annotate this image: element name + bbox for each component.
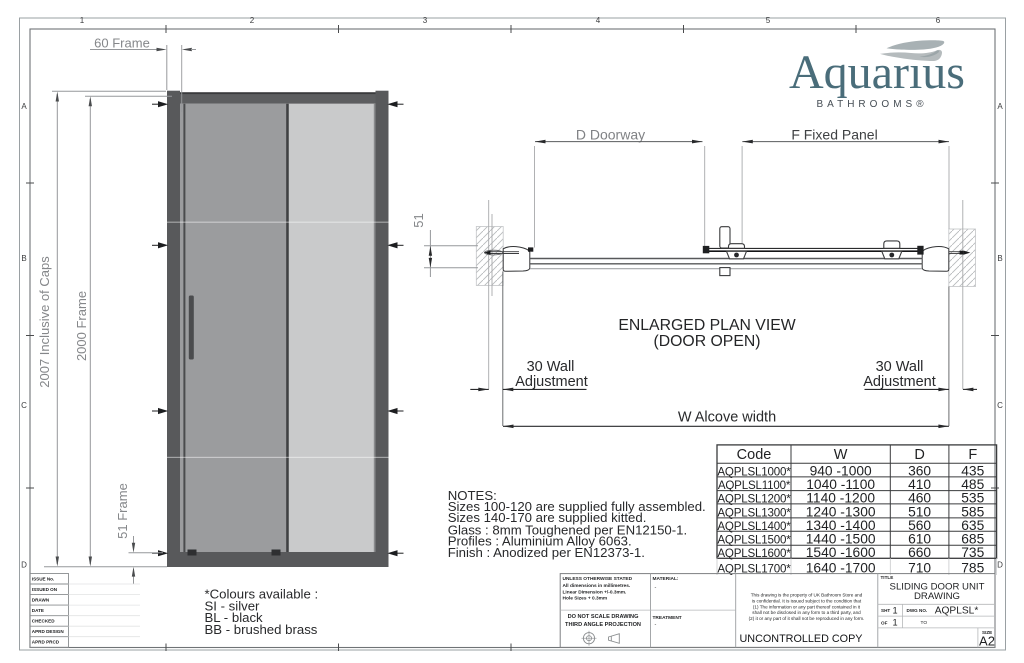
svg-text:6: 6: [936, 16, 941, 25]
svg-text:2000 Frame: 2000 Frame: [74, 291, 89, 361]
svg-text:Finish : Anodized per EN12373-: Finish : Anodized per EN12373-1.: [448, 545, 645, 560]
svg-text:Aquarıus: Aquarıus: [789, 46, 965, 99]
svg-text:All dimensions in millimetres.: All dimensions in millimetres.: [563, 583, 631, 589]
svg-text:-: -: [655, 622, 657, 628]
svg-text:TO: TO: [921, 620, 928, 626]
svg-text:ISSUED ON: ISSUED ON: [32, 587, 58, 592]
svg-text:C: C: [997, 401, 1003, 410]
svg-text:D: D: [914, 447, 924, 463]
svg-text:AQPLSL*: AQPLSL*: [935, 606, 979, 617]
svg-text:1: 1: [892, 617, 897, 627]
svg-text:Code: Code: [737, 447, 772, 463]
svg-text:Adjustment: Adjustment: [515, 374, 588, 390]
svg-text:AQPLSL1500*: AQPLSL1500*: [717, 534, 791, 547]
svg-text:Adjustment: Adjustment: [863, 374, 936, 390]
svg-text:B: B: [997, 254, 1002, 263]
svg-text:D Doorway: D Doorway: [576, 127, 645, 143]
svg-text:(1) The information or any par: (1) The information or any part thereof …: [753, 604, 861, 609]
svg-text:DO NOT SCALE DRAWING: DO NOT SCALE DRAWING: [568, 614, 639, 620]
svg-text:F Fixed Panel: F Fixed Panel: [791, 127, 877, 143]
svg-text:1: 1: [892, 605, 897, 615]
svg-text:30 Wall: 30 Wall: [876, 359, 924, 375]
svg-text:735: 735: [961, 545, 984, 560]
svg-text:AQPLSL1000*: AQPLSL1000*: [717, 466, 791, 479]
svg-text:A2: A2: [979, 634, 995, 649]
svg-text:OF: OF: [881, 620, 888, 625]
svg-text:AQPLSL1600*: AQPLSL1600*: [717, 547, 791, 560]
svg-text:A: A: [21, 102, 27, 111]
svg-text:UNLESS OTHERWISE STATED: UNLESS OTHERWISE STATED: [563, 576, 633, 582]
svg-text:is confidential. It is issued: is confidential. It is issued subject to…: [752, 598, 862, 603]
svg-text:CHECKED: CHECKED: [32, 619, 55, 624]
svg-text:BB - brushed brass: BB - brushed brass: [205, 622, 318, 637]
svg-text:51 Frame: 51 Frame: [115, 483, 130, 539]
svg-text:ISSUE No.: ISSUE No.: [32, 577, 54, 582]
svg-text:BATHROOMS®: BATHROOMS®: [817, 99, 928, 110]
svg-text:660: 660: [908, 545, 931, 560]
svg-text:DRAWING: DRAWING: [914, 591, 960, 602]
svg-text:1540 -1600: 1540 -1600: [806, 545, 876, 560]
svg-text:D: D: [997, 561, 1003, 570]
svg-text:Hole Sizes + 0.3mm: Hole Sizes + 0.3mm: [563, 596, 608, 602]
svg-text:30 Wall: 30 Wall: [527, 359, 575, 375]
svg-text:APRD PRCD: APRD PRCD: [32, 640, 60, 645]
svg-text:DWG NO.: DWG NO.: [907, 608, 928, 613]
svg-text:DRAWN: DRAWN: [32, 598, 50, 603]
svg-text:4: 4: [596, 16, 601, 25]
svg-text:C: C: [21, 401, 27, 410]
svg-text:51: 51: [411, 213, 426, 227]
svg-text:A: A: [997, 102, 1003, 111]
svg-text:APRD DESIGN: APRD DESIGN: [32, 629, 65, 634]
svg-text:(2) it or any part of it shall: (2) it or any part of it shall not be re…: [749, 616, 865, 621]
svg-text:3: 3: [423, 16, 428, 25]
svg-text:2: 2: [250, 16, 255, 25]
svg-text:B: B: [21, 254, 26, 263]
svg-text:UNCONTROLLED COPY: UNCONTROLLED COPY: [740, 633, 863, 645]
svg-text:W Alcove width: W Alcove width: [678, 410, 776, 426]
svg-text:Linear Dimension +/-0.3mm.: Linear Dimension +/-0.3mm.: [563, 590, 627, 596]
svg-text:TITLE: TITLE: [881, 575, 894, 580]
svg-text:AQPLSL1100*: AQPLSL1100*: [718, 479, 791, 492]
svg-text:D: D: [21, 561, 27, 570]
svg-text:(DOOR OPEN): (DOOR OPEN): [653, 333, 760, 350]
svg-text:shall not be disclosed in any: shall not be disclosed in any form to a …: [752, 610, 861, 615]
svg-text:TREATMENT: TREATMENT: [653, 615, 682, 621]
svg-text:MATERIAL:: MATERIAL:: [653, 576, 679, 582]
svg-text:THIRD ANGLE PROJECTION: THIRD ANGLE PROJECTION: [565, 622, 641, 628]
svg-text:ENLARGED PLAN VIEW: ENLARGED PLAN VIEW: [618, 317, 795, 334]
svg-text:F: F: [968, 447, 977, 463]
svg-text:W: W: [834, 447, 848, 463]
svg-text:This drawing is the property o: This drawing is the property of UK Bathr…: [751, 593, 863, 598]
svg-text:1: 1: [80, 16, 85, 25]
svg-text:AQPLSL1400*: AQPLSL1400*: [717, 520, 791, 533]
svg-text:AQPLSL1200*: AQPLSL1200*: [717, 493, 791, 506]
svg-text:DATE: DATE: [32, 608, 44, 613]
svg-text:-: -: [655, 585, 657, 591]
svg-text:SHT: SHT: [881, 608, 890, 613]
svg-text:5: 5: [766, 16, 771, 25]
svg-text:AQPLSL1300*: AQPLSL1300*: [717, 506, 791, 519]
svg-text:60 Frame: 60 Frame: [94, 36, 150, 51]
svg-text:2007 Inclusive of Caps: 2007 Inclusive of Caps: [37, 256, 52, 388]
